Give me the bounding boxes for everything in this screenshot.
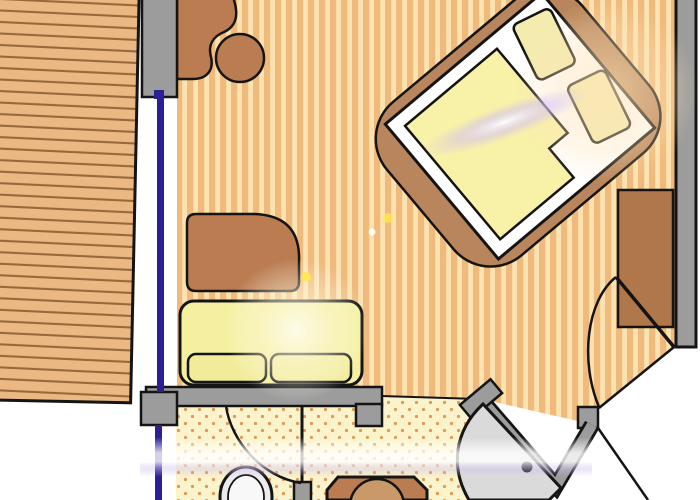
flare-dot-2 <box>383 213 393 223</box>
window-wall-column <box>141 392 177 425</box>
window-glass-upper <box>157 97 164 392</box>
desk-chair <box>216 34 264 82</box>
bathroom-door-post <box>294 482 311 500</box>
flare-dot-3 <box>369 229 376 236</box>
floor-plan-svg <box>0 0 700 500</box>
terrace-deck <box>0 0 139 403</box>
flare-band <box>140 437 592 477</box>
flare-sofa-glow <box>224 258 368 402</box>
soft-glow <box>514 0 698 184</box>
top-left-wall <box>142 0 177 97</box>
bathroom-wall-stub <box>356 404 382 426</box>
wardrobe <box>618 190 673 327</box>
flare-dot-1 <box>301 272 311 282</box>
floor-plan-image <box>0 0 700 500</box>
